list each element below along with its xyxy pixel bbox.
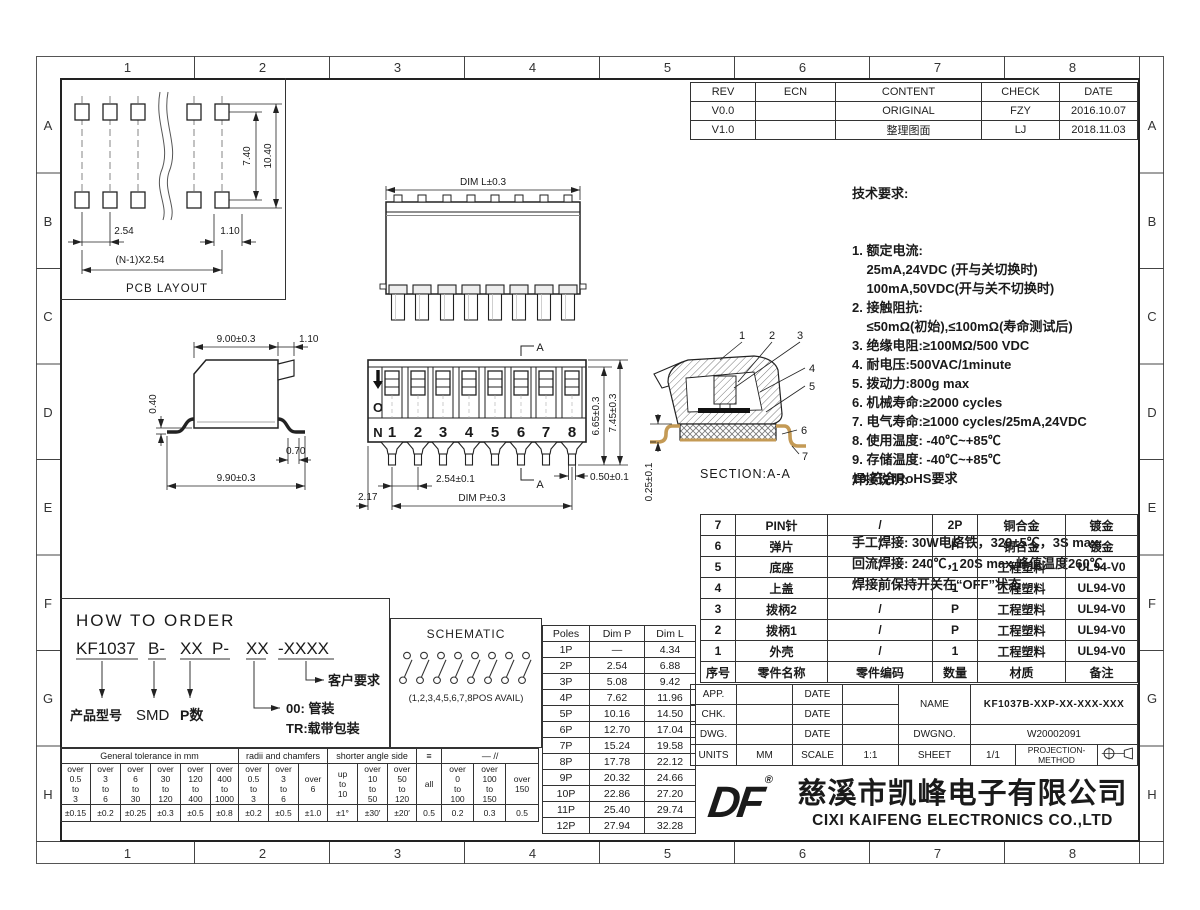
grid-ref-label: 4 xyxy=(465,842,600,864)
cell: 数量 xyxy=(933,662,978,683)
text-line: 2. 接触阻抗: xyxy=(852,298,1140,317)
dim-label: 6.65±0.3 xyxy=(591,396,602,435)
cell: Dim L xyxy=(645,626,696,642)
grid-ref-band-right: ABCDEFGH xyxy=(1140,78,1164,842)
bom-table-header: 序号零件名称零件编码数量材质备注 xyxy=(701,662,1138,683)
text-line: 6. 机械寿命:≥2000 cycles xyxy=(852,393,1140,412)
cell: ±0.2 xyxy=(91,805,121,822)
title-block-upper: APP. DATE NAME KF1037B-XXP-XX-XXX-XXX CH… xyxy=(690,684,1138,745)
title-block: APP. DATE NAME KF1037B-XXP-XX-XXX-XXX CH… xyxy=(690,684,1137,766)
dim-label: 1.10 xyxy=(220,226,240,237)
cell: Poles xyxy=(543,626,590,642)
position-number: 2 xyxy=(414,424,422,441)
grid-ref-label: F xyxy=(1140,556,1164,652)
grid-ref-label: G xyxy=(1140,651,1164,747)
grid-ref-label: 3 xyxy=(330,56,465,78)
cell: CHECK xyxy=(982,83,1060,102)
registered-mark-icon: ® xyxy=(764,774,774,786)
cell: 零件名称 xyxy=(736,662,828,683)
table-row: 1P—4.34 xyxy=(543,642,696,658)
dim-label: 0.70 xyxy=(286,446,306,457)
order-code-segment: P- xyxy=(212,639,229,658)
order-code-segment: B- xyxy=(148,639,165,658)
position-number: 4 xyxy=(465,424,474,441)
cell: over 3 to 6 xyxy=(269,764,299,805)
cell: ±0.15 xyxy=(61,805,91,822)
poles-table-header: PolesDim PDim L xyxy=(543,626,696,642)
table-row: 7P15.2419.58 xyxy=(543,738,696,754)
cell: 零件编码 xyxy=(828,662,933,683)
table-row: 2拨柄1/P工程塑料UL94-V0 xyxy=(701,620,1138,641)
order-label-tube: 00: 管装 xyxy=(286,701,334,716)
dwgno-label: DWGNO. xyxy=(899,725,971,745)
title-block-lower: UNITS MM SCALE 1:1 SHEET 1/1 PROJECTION-… xyxy=(690,744,1138,766)
cell: ±30′ xyxy=(358,805,388,822)
table-row: 3P5.089.42 xyxy=(543,674,696,690)
cell: ±20′ xyxy=(388,805,417,822)
order-code-segment: XX xyxy=(180,639,203,658)
grid-ref-label: 5 xyxy=(600,56,735,78)
table-row: 6弹片/P铜合金镀金 xyxy=(701,536,1138,557)
date-label: DATE xyxy=(793,685,843,705)
date-value xyxy=(843,725,899,745)
cell: ±0.5 xyxy=(269,805,299,822)
dim-label: 9.00±0.3 xyxy=(217,334,256,345)
front-view-drawing: A O N 1 2 3 4 5 6 7 8 A 6.65±0.3 7.45±0.… xyxy=(356,340,636,515)
grid-ref-label: 6 xyxy=(735,56,870,78)
section-view-drawing: 1 2 3 4 5 6 7 0.25±0.1 SECTION:A-A xyxy=(642,326,837,512)
dim-label: 10.40 xyxy=(263,143,274,168)
app-label: APP. xyxy=(691,685,737,705)
company-logo-text: DF xyxy=(705,778,765,827)
grid-ref-label: C xyxy=(1140,269,1164,365)
date-label: DATE xyxy=(793,725,843,745)
grid-ref-label: A xyxy=(36,78,60,174)
table-row: 11P25.4029.74 xyxy=(543,802,696,818)
grid-ref-label: B xyxy=(36,174,60,270)
cell: ±0.3 xyxy=(151,805,181,822)
projection-label: PROJECTION-METHOD xyxy=(1016,745,1098,766)
app-value xyxy=(737,685,793,705)
text-line: 4. 耐电压:500VAC/1minute xyxy=(852,355,1140,374)
cell: up to 10 xyxy=(328,764,358,805)
callout-number: 5 xyxy=(809,381,815,393)
company-logo: DF® xyxy=(686,778,791,828)
callout-number: 6 xyxy=(801,425,807,437)
dim-label: 0.25±0.1 xyxy=(644,462,655,501)
cell: over 0 to 100 xyxy=(442,764,474,805)
table-row: 1外壳/1工程塑料UL94-V0 xyxy=(701,641,1138,662)
dim-label: 7.40 xyxy=(242,146,253,166)
position-number: 1 xyxy=(388,424,396,441)
table-row: V0.0ORIGINALFZY2016.10.07 xyxy=(691,102,1138,121)
dim-label: 7.45±0.3 xyxy=(608,393,619,432)
grid-ref-label: 8 xyxy=(1005,842,1140,864)
grid-ref-label: H xyxy=(36,747,60,843)
tolerance-group: General tolerance in mm xyxy=(61,749,239,764)
cell: ±0.8 xyxy=(211,805,239,822)
grid-ref-label: 1 xyxy=(60,56,195,78)
how-to-order-title: HOW TO ORDER xyxy=(76,611,235,630)
units-label: UNITS xyxy=(691,745,737,766)
revision-table: REVECNCONTENTCHECKDATE V0.0ORIGINALFZY20… xyxy=(690,82,1138,140)
company-block: DF® 慈溪市凯峰电子有限公司 CIXI KAIFENG ELECTRONICS… xyxy=(690,764,1137,842)
text-line: 100mA,50VDC(开与关不切换时) xyxy=(852,279,1140,298)
tech-requirements-title: 技术要求: xyxy=(852,184,1140,203)
cell: over 10 to 50 xyxy=(358,764,388,805)
table-row: 8P17.7822.12 xyxy=(543,754,696,770)
top-view-drawing: DIM L±0.3 xyxy=(378,172,588,325)
text-line: 25mA,24VDC (开与关切换时) xyxy=(852,260,1140,279)
grid-ref-label: H xyxy=(1140,747,1164,843)
position-number: 6 xyxy=(517,424,525,441)
table-row: 4上盖/1工程塑料UL94-V0 xyxy=(701,578,1138,599)
order-label-product: 产品型号 xyxy=(70,708,122,723)
order-label-poles: P数 xyxy=(180,707,204,723)
side-view-drawing: 9.00±0.3 1.10 0.40 0.70 9.90±0.3 xyxy=(136,330,321,510)
dim-label: 0.40 xyxy=(148,394,159,414)
cell: over 0.5 to 3 xyxy=(239,764,269,805)
title-block-row: APP. DATE NAME KF1037B-XXP-XX-XXX-XXX xyxy=(691,685,1138,705)
table-row: 9P20.3224.66 xyxy=(543,770,696,786)
tolerance-group: shorter angle side xyxy=(328,749,417,764)
cell: 0.2 xyxy=(442,805,474,822)
grid-ref-label: 2 xyxy=(195,842,330,864)
order-code-segment: XX xyxy=(246,639,269,658)
on-letter: N xyxy=(373,425,382,440)
position-number: 7 xyxy=(542,424,550,441)
schematic-switches xyxy=(395,647,537,689)
table-row: 7PIN针/2P铜合金镀金 xyxy=(701,515,1138,536)
dim-label: 1.10 xyxy=(299,334,319,345)
text-line: 3. 绝缘电阻:≥100MΩ/500 VDC xyxy=(852,336,1140,355)
table-row: 2P2.546.88 xyxy=(543,658,696,674)
dwgno-value: W20002091 xyxy=(971,725,1138,745)
cell: ±0.25 xyxy=(121,805,151,822)
table-row: 10P22.8627.20 xyxy=(543,786,696,802)
cell: over 150 xyxy=(506,764,539,805)
cell: over 6 xyxy=(299,764,328,805)
grid-ref-label: 3 xyxy=(330,842,465,864)
order-label-tape: TR:载带包装 xyxy=(286,721,360,736)
cell: all xyxy=(417,764,442,805)
schematic-title: SCHEMATIC xyxy=(391,627,541,641)
cell: ±0.2 xyxy=(239,805,269,822)
cell: over 0.5 to 3 xyxy=(61,764,91,805)
dim-label: 0.50±0.1 xyxy=(590,472,629,483)
grid-ref-label: D xyxy=(1140,365,1164,461)
callout-number: 7 xyxy=(802,451,808,463)
dim-label: 2.54±0.1 xyxy=(436,474,475,485)
grid-ref-label: 1 xyxy=(60,842,195,864)
projection-method-icon xyxy=(1100,746,1136,761)
tolerance-group: — // xyxy=(442,749,539,764)
grid-ref-label: E xyxy=(36,460,60,556)
cell: CONTENT xyxy=(836,83,982,102)
text-line: 1. 额定电流: xyxy=(852,241,1140,260)
schematic-caption: (1,2,3,4,5,6,7,8POS AVAIL) xyxy=(391,693,541,704)
tolerance-group: radii and chamfers xyxy=(239,749,328,764)
tolerance-ranges-row: over 0.5 to 3over 3 to 6over 6 to 30over… xyxy=(61,764,539,805)
cell: over 30 to 120 xyxy=(151,764,181,805)
table-row: 4P7.6211.96 xyxy=(543,690,696,706)
grid-ref-label: E xyxy=(1140,460,1164,556)
tolerance-values-row: ±0.15±0.2±0.25±0.3±0.5±0.8±0.2±0.5±1.0±1… xyxy=(61,805,539,822)
cell: 0.3 xyxy=(474,805,506,822)
cell: over 400 to 1000 xyxy=(211,764,239,805)
scale-label: SCALE xyxy=(793,745,843,766)
grid-ref-label: B xyxy=(1140,174,1164,270)
dwg-value xyxy=(737,725,793,745)
projection-cell xyxy=(1098,745,1138,766)
sheet-value: 1/1 xyxy=(971,745,1016,766)
dim-label: 2.54 xyxy=(114,226,134,237)
schematic-box: SCHEMATIC (1,2,3,4,5,6,7,8POS AVAIL) xyxy=(390,618,542,748)
cell: over 50 to 120 xyxy=(388,764,417,805)
order-label-customer: 客户要求 xyxy=(328,673,381,688)
table-row: 5底座/1工程塑料UL94-V0 xyxy=(701,557,1138,578)
solder-notes-title: 焊接说明: xyxy=(852,469,1140,490)
cell: over 120 to 400 xyxy=(181,764,211,805)
dim-label: 2.17 xyxy=(358,492,378,503)
name-value: KF1037B-XXP-XX-XXX-XXX xyxy=(971,685,1138,725)
bom-table: 7PIN针/2P铜合金镀金6弹片/P铜合金镀金5底座/1工程塑料UL94-V04… xyxy=(700,514,1138,683)
cell: 材质 xyxy=(978,662,1066,683)
dim-label: DIM P±0.3 xyxy=(458,493,506,504)
section-marker: A xyxy=(536,479,544,491)
dwg-label: DWG. xyxy=(691,725,737,745)
table-row: V1.0整理图面LJ2018.11.03 xyxy=(691,121,1138,140)
name-label: NAME xyxy=(899,685,971,725)
callout-number: 2 xyxy=(769,330,775,342)
cell: 序号 xyxy=(701,662,736,683)
section-label: SECTION:A-A xyxy=(700,467,791,481)
grid-ref-band-top: 12345678 xyxy=(60,56,1140,78)
tolerance-table: General tolerance in mm radii and chamfe… xyxy=(60,748,539,822)
grid-ref-band-bottom: 12345678 xyxy=(60,842,1140,864)
grid-ref-label: 7 xyxy=(870,56,1005,78)
cell: ECN xyxy=(756,83,836,102)
cell: ±0.5 xyxy=(181,805,211,822)
position-number: 8 xyxy=(568,424,576,441)
pcb-layout-drawing: 7.40 10.40 2.54 1.10 (N-1)X2.54 PCB LAYO… xyxy=(62,84,284,298)
order-label-smd: SMD xyxy=(136,707,170,724)
dim-label: 9.90±0.3 xyxy=(217,473,256,484)
date-label: DATE xyxy=(793,705,843,725)
title-block-row: DWG. DATE DWGNO. W20002091 xyxy=(691,725,1138,745)
cell: over 100 to 150 xyxy=(474,764,506,805)
grid-ref-label: G xyxy=(36,651,60,747)
tolerance-group: ≡ xyxy=(417,749,442,764)
grid-ref-label: A xyxy=(1140,78,1164,174)
title-block-row: UNITS MM SCALE 1:1 SHEET 1/1 PROJECTION-… xyxy=(691,745,1138,766)
position-number: 5 xyxy=(491,424,499,441)
cell: REV xyxy=(691,83,756,102)
text-line: 5. 拨动力:800g max xyxy=(852,374,1140,393)
tolerance-group-header: General tolerance in mm radii and chamfe… xyxy=(61,749,539,764)
table-row: 12P27.9432.28 xyxy=(543,818,696,834)
grid-ref-label: 4 xyxy=(465,56,600,78)
poles-table: PolesDim PDim L 1P—4.342P2.546.883P5.089… xyxy=(542,625,696,834)
callout-number: 1 xyxy=(739,330,745,342)
grid-ref-label: 7 xyxy=(870,842,1005,864)
position-number: 3 xyxy=(439,424,447,441)
text-line: ≤50mΩ(初始),≤100mΩ(寿命测试后) xyxy=(852,317,1140,336)
revision-table-header: REVECNCONTENTCHECKDATE xyxy=(691,83,1138,102)
scale-value: 1:1 xyxy=(843,745,899,766)
table-row: 6P12.7017.04 xyxy=(543,722,696,738)
company-name-cn: 慈溪市凯峰电子有限公司 xyxy=(788,777,1137,811)
cell: ±1° xyxy=(328,805,358,822)
table-row: 3拨柄2/P工程塑料UL94-V0 xyxy=(701,599,1138,620)
company-name-en: CIXI KAIFENG ELECTRONICS CO.,LTD xyxy=(788,811,1137,830)
cell: over 3 to 6 xyxy=(91,764,121,805)
grid-ref-label: C xyxy=(36,269,60,365)
chk-label: CHK. xyxy=(691,705,737,725)
callout-number: 4 xyxy=(809,363,815,375)
grid-ref-band-left: ABCDEFGH xyxy=(36,78,60,842)
cell: 0.5 xyxy=(506,805,539,822)
date-value xyxy=(843,705,899,725)
cell: DATE xyxy=(1060,83,1138,102)
order-code-segment: -XXXX xyxy=(278,639,329,658)
cell: 备注 xyxy=(1066,662,1138,683)
chk-value xyxy=(737,705,793,725)
how-to-order-drawing: HOW TO ORDER KF1037 B- XX P- XX -XXXX 产品… xyxy=(62,600,388,746)
units-value: MM xyxy=(737,745,793,766)
order-code-segment: KF1037 xyxy=(76,639,136,658)
dim-label: DIM L±0.3 xyxy=(460,177,506,188)
grid-ref-label: F xyxy=(36,556,60,652)
date-value xyxy=(843,685,899,705)
callout-number: 3 xyxy=(797,330,803,342)
cell: 0.5 xyxy=(417,805,442,822)
pcb-layout-label: PCB LAYOUT xyxy=(126,283,208,295)
grid-ref-label: 5 xyxy=(600,842,735,864)
cell: over 6 to 30 xyxy=(121,764,151,805)
grid-ref-label: 2 xyxy=(195,56,330,78)
grid-ref-label: 8 xyxy=(1005,56,1140,78)
section-marker: A xyxy=(536,342,544,354)
grid-ref-label: D xyxy=(36,365,60,461)
cell: ±1.0 xyxy=(299,805,328,822)
sheet-label: SHEET xyxy=(899,745,971,766)
dim-label: (N-1)X2.54 xyxy=(116,255,165,266)
table-row: 5P10.1614.50 xyxy=(543,706,696,722)
grid-ref-label: 6 xyxy=(735,842,870,864)
cell: Dim P xyxy=(590,626,645,642)
